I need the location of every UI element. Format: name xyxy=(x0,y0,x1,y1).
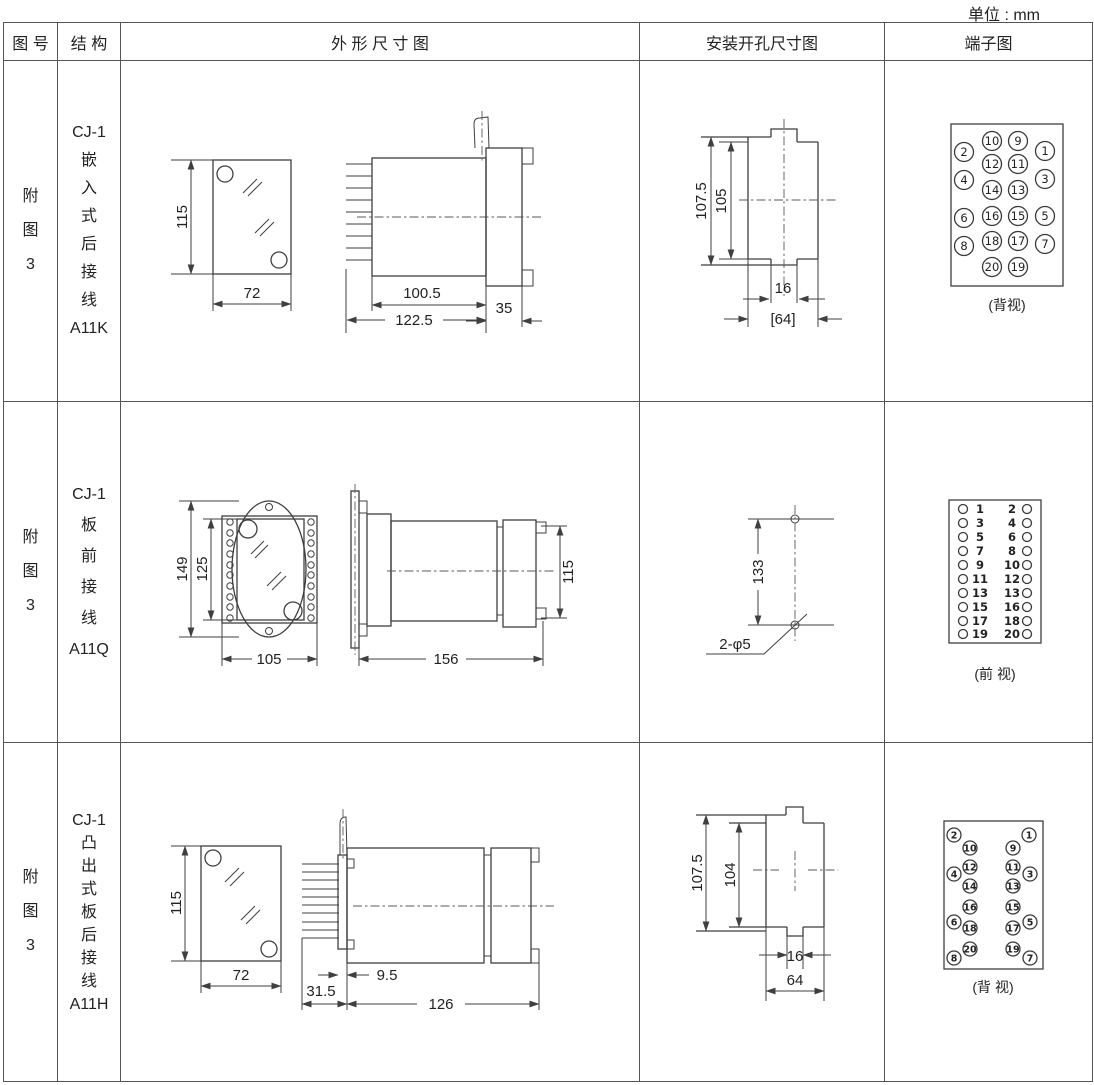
terminal-grid-rear: 2109112114314131615651817872019 xyxy=(955,132,1055,277)
terminal-number: 13 xyxy=(1006,881,1019,892)
front-view: 149 125 105 xyxy=(174,501,317,668)
terminal-number: 2 xyxy=(1008,502,1016,516)
header-figure: 图 号 xyxy=(4,23,58,61)
terminal-number: 10 xyxy=(1004,558,1020,572)
terminal-number: 7 xyxy=(1041,237,1048,251)
terminal-cell-a11k: 2109112114314131615651817872019 (背视) xyxy=(885,61,1092,402)
terminal-number: 7 xyxy=(976,544,984,558)
side-view: 115 156 xyxy=(351,484,577,668)
terminal-number: 13 xyxy=(1004,586,1020,600)
dim-slot-width: 16 xyxy=(775,280,792,297)
terminal-circle xyxy=(1023,505,1032,514)
glass-shine xyxy=(225,868,260,924)
dim-side-length: 126 xyxy=(428,996,453,1013)
terminal-number: 20 xyxy=(963,944,977,955)
pins xyxy=(346,164,372,260)
mounting-drawing-a11k: 107.5 105 16 [64] xyxy=(640,61,884,401)
terminal-circle xyxy=(1023,603,1032,612)
dim-inner-height: 125 xyxy=(194,556,211,581)
terminal-circle xyxy=(1023,617,1032,626)
header-outline: 外 形 尺 寸 图 xyxy=(121,23,640,61)
terminal-circle xyxy=(959,575,968,584)
terminal-number: 13 xyxy=(972,586,988,600)
structure-cell-a11h: CJ-1 凸 出 式 板 后 接 线 A11H xyxy=(58,743,121,1081)
dim-side-height: 115 xyxy=(560,560,577,584)
terminal-number: 8 xyxy=(1008,544,1016,558)
terminal-number: 17 xyxy=(972,614,988,628)
terminal-circle xyxy=(959,630,968,639)
terminal-number: 15 xyxy=(1006,902,1019,913)
terminal-caption: (背 视) xyxy=(972,979,1013,995)
dim-inner-height: 104 xyxy=(722,862,739,887)
dim-outer-height: 107.5 xyxy=(689,854,706,892)
terminal-circle xyxy=(959,603,968,612)
outline-drawing-a11h: 115 72 xyxy=(121,743,639,1080)
dimension-table: 图 号 结 构 外 形 尺 寸 图 安装开孔尺寸图 端子图 附 图 3 CJ-1… xyxy=(3,22,1093,1082)
outline-cell-a11k: 115 72 100.5 xyxy=(121,61,640,402)
terminal-circle xyxy=(959,561,968,570)
dim-outer-height: 107.5 xyxy=(693,182,710,220)
terminal-number: 18 xyxy=(963,923,977,934)
header-terminal: 端子图 xyxy=(885,23,1092,61)
latch-hook xyxy=(340,817,347,855)
latch-hook xyxy=(474,117,489,148)
outline-drawing-a11q: 149 125 105 xyxy=(121,402,639,742)
structure-label: CJ-1 凸 出 式 板 后 接 线 A11H xyxy=(70,809,109,1016)
terminal-number: 12 xyxy=(985,157,1000,171)
terminal-number: 6 xyxy=(951,917,958,928)
terminal-number: 19 xyxy=(1006,944,1019,955)
terminal-circle xyxy=(1023,547,1032,556)
dim-slot-width: 16 xyxy=(787,948,804,965)
terminal-number: 14 xyxy=(963,881,977,892)
terminal-number: 9 xyxy=(976,558,984,572)
terminal-number: 12 xyxy=(963,862,976,873)
dim-pin-length: 31.5 xyxy=(306,983,335,1000)
terminal-number: 9 xyxy=(1014,134,1021,148)
dim-front-width: 72 xyxy=(233,967,250,984)
terminal-number: 7 xyxy=(1027,953,1034,964)
terminal-drawing-a11k: 2109112114314131615651817872019 (背视) xyxy=(885,61,1091,401)
structure-label: CJ-1 嵌 入 式 后 接 线 A11K xyxy=(70,119,108,343)
terminal-number: 15 xyxy=(1011,209,1026,223)
dim-opening-width: [64] xyxy=(770,311,795,328)
terminal-number: 20 xyxy=(985,260,1000,274)
dim-body-depth: 100.5 xyxy=(403,285,441,302)
terminal-number: 5 xyxy=(1027,917,1034,928)
terminal-number: 12 xyxy=(1004,572,1020,586)
terminal-circle xyxy=(1023,519,1032,528)
terminal-circle xyxy=(959,547,968,556)
terminal-number: 3 xyxy=(1041,172,1048,186)
terminal-box xyxy=(944,821,1043,969)
terminal-circle xyxy=(959,617,968,626)
terminal-number: 20 xyxy=(1004,627,1020,641)
terminal-circle xyxy=(959,519,968,528)
terminal-number: 8 xyxy=(960,239,967,253)
dim-outer-height: 149 xyxy=(174,556,191,581)
figure-label: 附 图 3 xyxy=(22,180,38,282)
datasheet-page: 单位 : mm 图 号 结 构 外 形 尺 寸 图 安装开孔尺寸图 端子图 附 … xyxy=(0,0,1094,1085)
pins xyxy=(302,864,339,938)
terminal-circle xyxy=(959,533,968,542)
terminal-circle xyxy=(1023,589,1032,598)
terminal-circle xyxy=(1023,575,1032,584)
mounting-drawing-a11q: 133 2-φ5 xyxy=(640,402,884,742)
terminal-drawing-a11q: 1234567891011121313151617181920 (前 视) xyxy=(885,402,1091,742)
terminal-number: 6 xyxy=(960,211,967,225)
terminal-number: 1 xyxy=(1026,830,1033,841)
terminal-caption: (前 视) xyxy=(974,666,1015,682)
dim-side-length: 156 xyxy=(433,651,458,668)
terminal-drawing-a11h: 2110912114314131615651817201987 (背 视) xyxy=(885,743,1091,1080)
terminal-number: 3 xyxy=(976,516,984,530)
terminal-list-front: 1234567891011121313151617181920 xyxy=(959,502,1032,641)
cutout-outline xyxy=(696,807,824,936)
dim-front-width: 72 xyxy=(244,285,261,302)
terminal-number: 17 xyxy=(1011,234,1026,248)
terminal-circle xyxy=(1023,561,1032,570)
dim-total-depth: 122.5 xyxy=(395,312,433,329)
terminal-number: 4 xyxy=(951,869,958,880)
terminal-number: 16 xyxy=(1004,600,1020,614)
terminal-number: 17 xyxy=(1006,923,1019,934)
dim-front-height: 115 xyxy=(168,891,185,915)
side-view: 100.5 122.5 35 xyxy=(346,111,542,333)
header-structure: 结 构 xyxy=(58,23,121,61)
outline-cell-a11h: 115 72 xyxy=(121,743,640,1081)
terminal-number: 15 xyxy=(972,600,988,614)
terminal-number: 11 xyxy=(1006,862,1019,873)
terminal-cell-a11h: 2110912114314131615651817201987 (背 视) xyxy=(885,743,1092,1081)
terminal-number: 2 xyxy=(960,145,967,159)
holes-label: 2-φ5 xyxy=(719,636,750,653)
terminal-circle xyxy=(959,505,968,514)
terminal-caption: (背视) xyxy=(988,297,1025,313)
structure-cell-a11k: CJ-1 嵌 入 式 后 接 线 A11K xyxy=(58,61,121,402)
terminal-number: 18 xyxy=(985,234,1000,248)
dim-flange-depth: 35 xyxy=(496,300,513,317)
terminal-number: 19 xyxy=(1011,260,1026,274)
terminal-circle xyxy=(1023,533,1032,542)
terminal-number: 1 xyxy=(1041,144,1048,158)
terminal-number: 4 xyxy=(1008,516,1016,530)
terminal-number: 11 xyxy=(972,572,988,586)
terminal-number: 5 xyxy=(1041,209,1048,223)
structure-label: CJ-1 板 前 接 线 A11Q xyxy=(69,479,109,665)
terminal-number: 5 xyxy=(976,530,984,544)
mounting-cell-a11h: 107.5 104 16 64 xyxy=(640,743,885,1081)
terminal-number: 2 xyxy=(951,830,958,841)
terminal-circle xyxy=(1023,630,1032,639)
front-view: 115 72 xyxy=(171,160,291,311)
dim-hole-spacing: 133 xyxy=(750,559,767,584)
mounting-drawing-a11h: 107.5 104 16 64 xyxy=(640,743,884,1080)
figure-label: 附 图 3 xyxy=(22,521,38,623)
terminal-number: 1 xyxy=(976,502,984,516)
mounting-cell-a11q: 133 2-φ5 xyxy=(640,402,885,743)
structure-cell-a11q: CJ-1 板 前 接 线 A11Q xyxy=(58,402,121,743)
terminal-circle xyxy=(959,589,968,598)
dim-inner-height: 105 xyxy=(713,188,730,213)
terminal-number: 3 xyxy=(1027,869,1034,880)
figure-cell-a11h: 附 图 3 xyxy=(4,743,58,1081)
terminal-number: 18 xyxy=(1004,614,1020,628)
dim-front-width: 105 xyxy=(256,651,281,668)
dim-plate-thickness: 9.5 xyxy=(377,967,398,984)
terminal-number: 10 xyxy=(985,134,1000,148)
terminal-number: 9 xyxy=(1010,843,1017,854)
outline-drawing-a11k: 115 72 100.5 xyxy=(121,61,639,401)
figure-label: 附 图 3 xyxy=(22,861,38,963)
dim-opening-width: 64 xyxy=(787,972,804,989)
front-view: 115 72 xyxy=(168,846,281,993)
header-mounting: 安装开孔尺寸图 xyxy=(640,23,885,61)
glass-shine xyxy=(243,179,274,236)
figure-cell-a11q: 附 图 3 xyxy=(4,402,58,743)
glass-shine xyxy=(251,541,286,590)
terminal-grid-rear: 2110912114314131615651817201987 xyxy=(947,828,1037,965)
terminal-cell-a11q: 1234567891011121313151617181920 (前 视) xyxy=(885,402,1092,743)
terminal-number: 6 xyxy=(1008,530,1016,544)
mounting-cell-a11k: 107.5 105 16 [64] xyxy=(640,61,885,402)
terminal-number: 19 xyxy=(972,627,988,641)
terminal-number: 8 xyxy=(951,953,958,964)
terminal-number: 16 xyxy=(963,902,977,913)
figure-cell-a11k: 附 图 3 xyxy=(4,61,58,402)
terminal-number: 13 xyxy=(1011,183,1026,197)
outline-cell-a11q: 149 125 105 xyxy=(121,402,640,743)
terminal-number: 16 xyxy=(985,209,1000,223)
dim-front-height: 115 xyxy=(174,205,191,229)
terminal-number: 4 xyxy=(960,173,967,187)
terminal-number: 11 xyxy=(1011,157,1026,171)
terminal-number: 14 xyxy=(985,183,1000,197)
terminal-number: 10 xyxy=(963,843,977,854)
side-view: 9.5 31.5 126 xyxy=(302,809,554,1013)
